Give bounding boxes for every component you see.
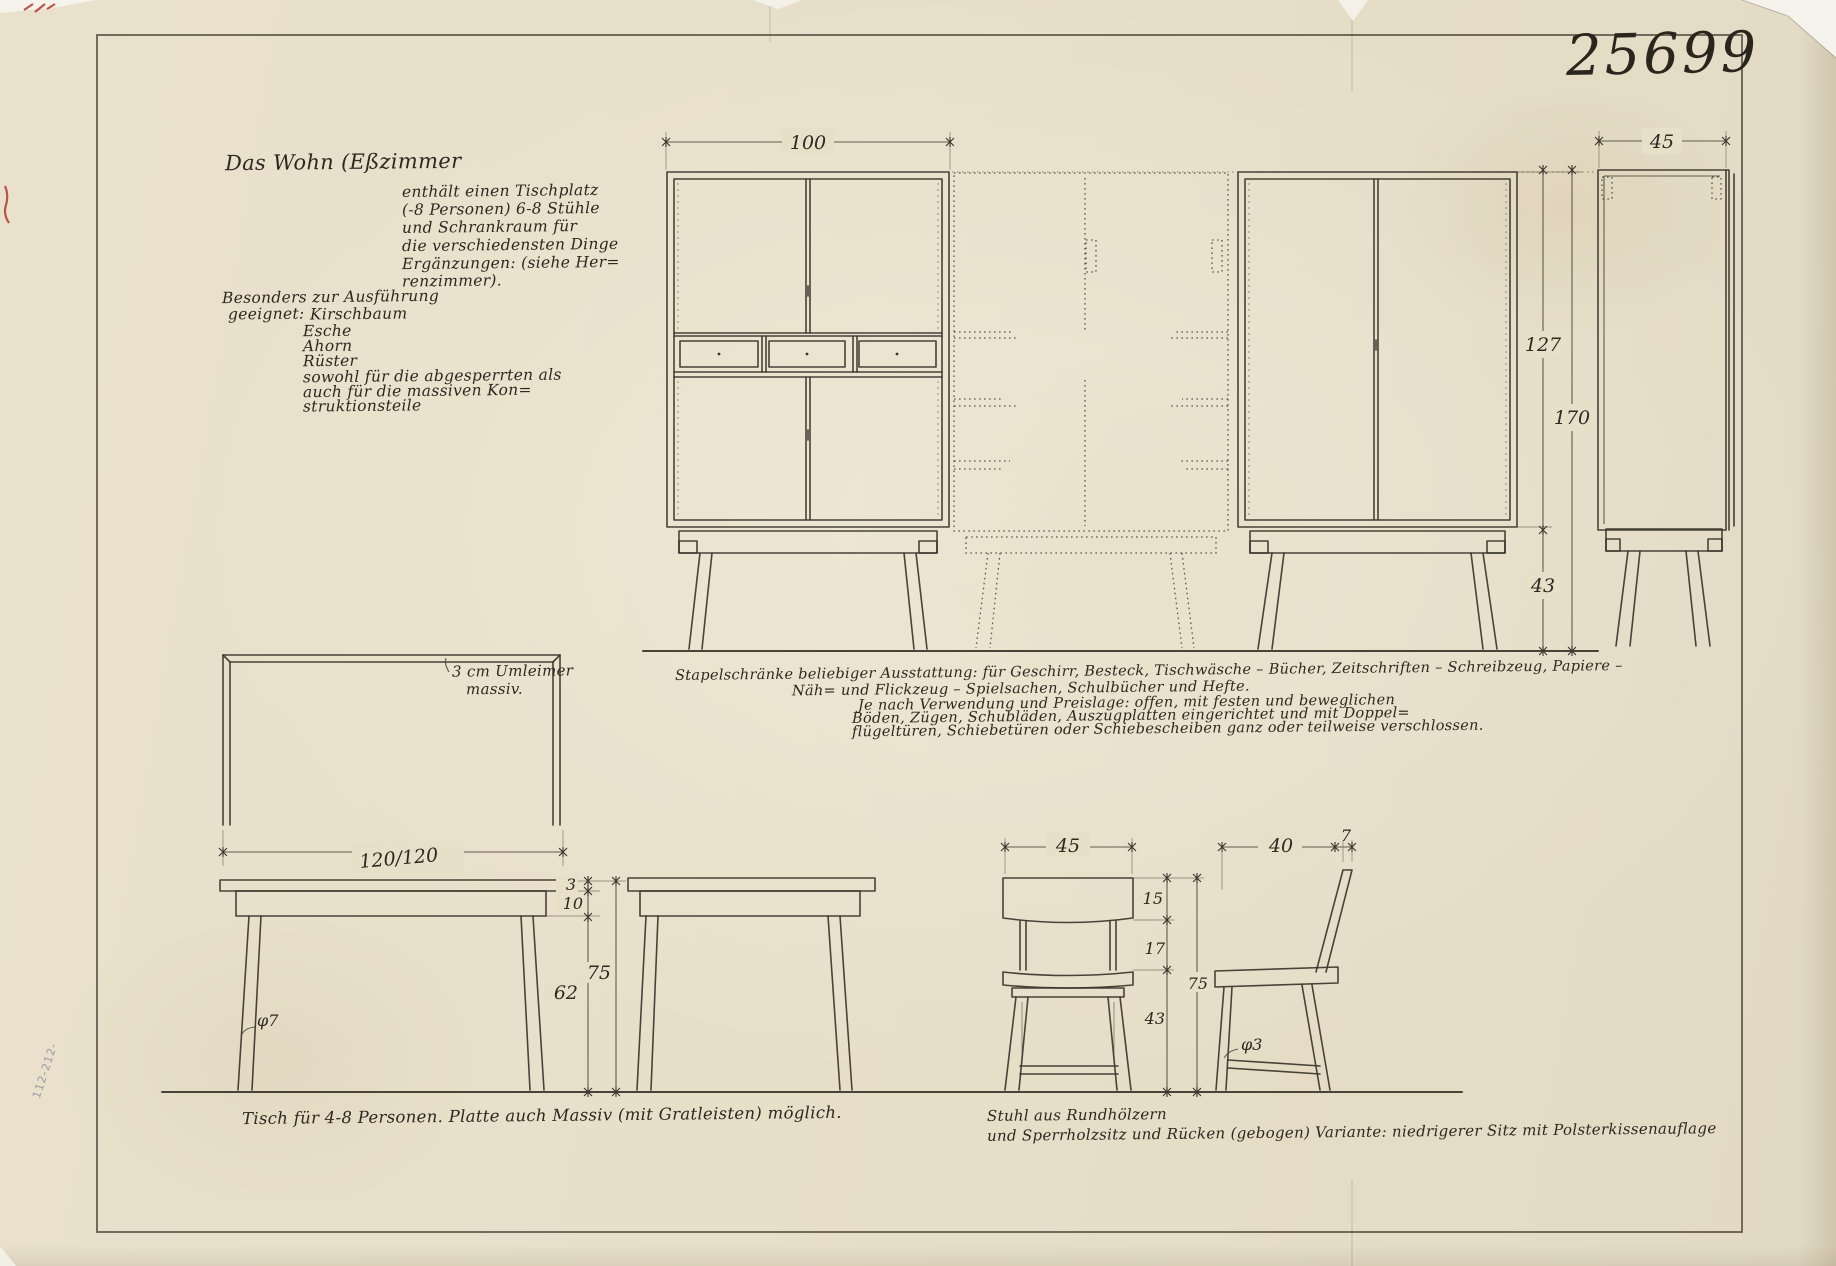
side-chair-front-leg <box>1216 987 1232 1090</box>
blueprint-sheet: 100 45 127 43 170 <box>0 0 1836 1266</box>
dim-label-chair-height: 75 <box>1188 974 1208 993</box>
cabinet-legs <box>689 553 927 649</box>
dim-label-chair-leg-diameter: φ3 <box>1241 1035 1262 1054</box>
dim-label-table-leg-diameter: φ7 <box>257 1011 279 1030</box>
drawing-number: 25699 <box>1565 20 1759 89</box>
cabinet-front-view <box>667 172 949 649</box>
cabinet-dimensions: 100 45 127 43 170 <box>662 128 1730 656</box>
leg-diameter-leader <box>1224 1049 1238 1058</box>
side-chair-back <box>1316 870 1352 972</box>
notes-intro-line: die verschiedensten Dinge <box>402 235 619 255</box>
side-chair-stretcher <box>1228 1060 1320 1074</box>
chair-front-view <box>1001 838 1136 1090</box>
table-plan-note-line: 3 cm Umleimer <box>452 661 573 680</box>
dim-label-chair-depth: 40 <box>1268 835 1293 857</box>
note-leader <box>445 658 449 672</box>
table-side-view <box>628 878 875 1090</box>
side-chair-seat <box>1215 967 1338 987</box>
chair-backrest <box>1003 878 1133 923</box>
dim-label-apron: 10 <box>563 894 583 913</box>
wardrobe-front-view <box>1238 172 1517 649</box>
dim-label-clear-height: 62 <box>554 982 578 1004</box>
chair-back-posts <box>1020 921 1116 970</box>
side-view-legs <box>1616 551 1710 646</box>
table-side-legs <box>637 916 852 1090</box>
red-registration-marks <box>5 4 55 223</box>
dim-label-cabinet-width: 100 <box>790 132 826 154</box>
phantom-shelf-lines-left <box>954 332 1018 469</box>
technical-drawing-canvas: 100 45 127 43 170 <box>0 0 1836 1266</box>
chair-legs <box>1005 997 1131 1090</box>
dim-label-back-offset: 7 <box>1341 826 1352 845</box>
notes-intro-line: Ergänzungen: (siehe Her= <box>402 253 620 273</box>
chair-dimensions: 45 15 17 43 75 <box>1046 832 1210 1097</box>
chair-seat <box>1003 972 1133 988</box>
table-front-view <box>220 880 560 1090</box>
leg-diameter-leader <box>241 1027 255 1036</box>
dim-label-top-thickness: 3 <box>566 875 576 894</box>
dim-label-body-height: 127 <box>1525 334 1562 356</box>
chair-stretcher <box>1020 1066 1118 1074</box>
dim-label-back-height: 15 <box>1143 889 1163 908</box>
cabinet-phantom-view <box>954 173 1228 648</box>
dim-label-seat-height: 43 <box>1144 1009 1165 1028</box>
materials-label: geeignet: <box>228 305 305 324</box>
dim-label-back-gap: 17 <box>1145 939 1166 958</box>
dim-label-chair-width: 45 <box>1055 835 1080 857</box>
notes-intro-line: enthält einen Tischplatz <box>402 181 599 201</box>
table-plan-note-line: massiv. <box>466 680 523 699</box>
dim-label-leg-height: 43 <box>1530 575 1555 597</box>
table-legs <box>238 916 544 1090</box>
materials-item: Kirschbaum <box>310 304 408 323</box>
chair-side-view: 40 7 φ3 <box>1215 826 1356 1090</box>
chair-caption-line: Stuhl aus Rundhölzern <box>987 1105 1167 1125</box>
notes-heading: Das Wohn (Eßzimmer <box>225 149 462 175</box>
dim-label-side-width: 45 <box>1649 131 1674 153</box>
notes-intro-line: (-8 Personen) 6-8 Stühle <box>402 199 600 219</box>
phantom-legs <box>976 553 1194 648</box>
dim-label-total-height: 170 <box>1554 407 1590 429</box>
table-dimensions: 3 10 62 75 φ7 <box>257 875 626 1097</box>
cabinet-side-view <box>1598 170 1734 646</box>
fold-creases <box>770 0 1352 1266</box>
table-plan-dimension: 120/120 <box>219 830 567 874</box>
notes-intro-line: und Schrankraum für <box>402 217 577 237</box>
paper-edge-slivers <box>0 0 1368 1266</box>
phantom-shelf-lines-right <box>1168 332 1228 469</box>
dim-label-table-height: 75 <box>587 962 611 984</box>
materials-item: struktionsteile <box>303 396 422 415</box>
wardrobe-legs <box>1258 553 1497 649</box>
